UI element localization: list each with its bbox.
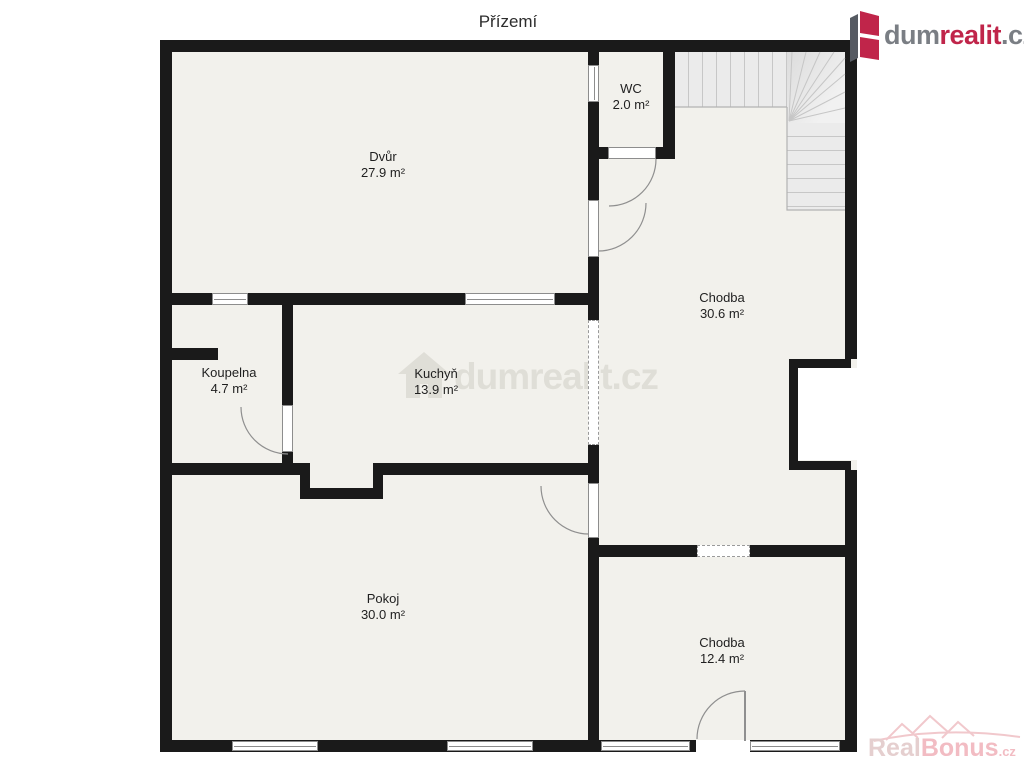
wall-segment [588, 257, 599, 320]
wall-segment [373, 463, 383, 499]
room-area: 12.4 m² [637, 651, 807, 667]
room-area: 30.6 m² [637, 306, 807, 322]
room-area: 13.9 m² [351, 382, 521, 398]
floor-plan-page: Přízemí dumrealit.cz [0, 0, 1024, 768]
wall-segment [166, 348, 218, 360]
room-name: Kuchyň [351, 366, 521, 382]
dumrealit-logo-text: dumrealit.cz [884, 20, 1024, 51]
realbonus-part-bonus: Bonus [921, 734, 999, 762]
window-symbol [212, 293, 248, 305]
wall-segment [300, 488, 383, 499]
window-symbol [232, 741, 318, 751]
wall-segment [789, 461, 851, 470]
room-name: Pokoj [298, 591, 468, 607]
wall-segment [248, 293, 465, 305]
wall-segment [588, 40, 599, 65]
logo-part-cz: .cz [1001, 20, 1024, 50]
room-area: 30.0 m² [298, 607, 468, 623]
glazed-partition-symbol [697, 545, 750, 557]
realbonus-watermark-text: RealBonus.cz [868, 734, 1016, 763]
page-title: Přízemí [479, 12, 538, 32]
wall-segment [789, 359, 798, 470]
window-symbol [465, 293, 555, 305]
room-name: Chodba [637, 290, 807, 306]
staircase-winder [787, 52, 845, 123]
realbonus-part-cz: .cz [999, 744, 1016, 759]
room-name: Chodba [637, 635, 807, 651]
staircase-lower-flight [787, 123, 845, 210]
door-leaf [744, 691, 746, 741]
realbonus-watermark: RealBonus.cz [866, 712, 1022, 766]
logo-part-realit: realit [940, 20, 1002, 50]
room-label-chodba-lower: Chodba 12.4 m² [637, 635, 807, 667]
room-area: 27.9 m² [298, 165, 468, 181]
room-name: Dvůr [298, 149, 468, 165]
wall-segment [656, 147, 675, 159]
room-label-pokoj: Pokoj 30.0 m² [298, 591, 468, 623]
wall-segment [588, 102, 599, 200]
room-label-wc: WC 2.0 m² [546, 81, 716, 113]
room-label-dvur: Dvůr 27.9 m² [298, 149, 468, 181]
wall-segment [789, 359, 851, 368]
room-name: WC [546, 81, 716, 97]
room-area: 2.0 m² [546, 97, 716, 113]
wall-segment [588, 538, 599, 752]
door-leaf [282, 405, 293, 452]
room-area: 4.7 m² [144, 381, 314, 397]
room-label-kuchyn: Kuchyň 13.9 m² [351, 366, 521, 398]
wall-segment [845, 40, 857, 359]
wall-recess [798, 368, 857, 460]
door-opening [696, 740, 750, 752]
room-label-koupelna: Koupelna 4.7 m² [144, 365, 314, 397]
wall-segment [166, 293, 212, 305]
wall-segment [160, 40, 857, 52]
wall-segment [845, 470, 857, 752]
realbonus-part-real: Real [868, 734, 921, 762]
wall-segment [383, 463, 599, 475]
wall-segment [750, 545, 857, 557]
logo-part-dum: dum [884, 20, 940, 50]
dumrealit-logo-icon [846, 6, 882, 64]
wall-segment [555, 293, 599, 305]
wall-segment [599, 147, 608, 159]
window-symbol [601, 741, 690, 751]
wall-segment [166, 463, 310, 475]
window-symbol [750, 741, 840, 751]
room-label-chodba-upper: Chodba 30.6 m² [637, 290, 807, 322]
glazed-partition-symbol [588, 320, 599, 445]
window-symbol [447, 741, 533, 751]
dumrealit-logo: dumrealit.cz [846, 4, 1022, 60]
door-leaf [588, 483, 599, 538]
room-name: Koupelna [144, 365, 314, 381]
door-leaf [608, 147, 656, 159]
wall-segment [588, 545, 697, 557]
door-leaf [588, 200, 599, 257]
